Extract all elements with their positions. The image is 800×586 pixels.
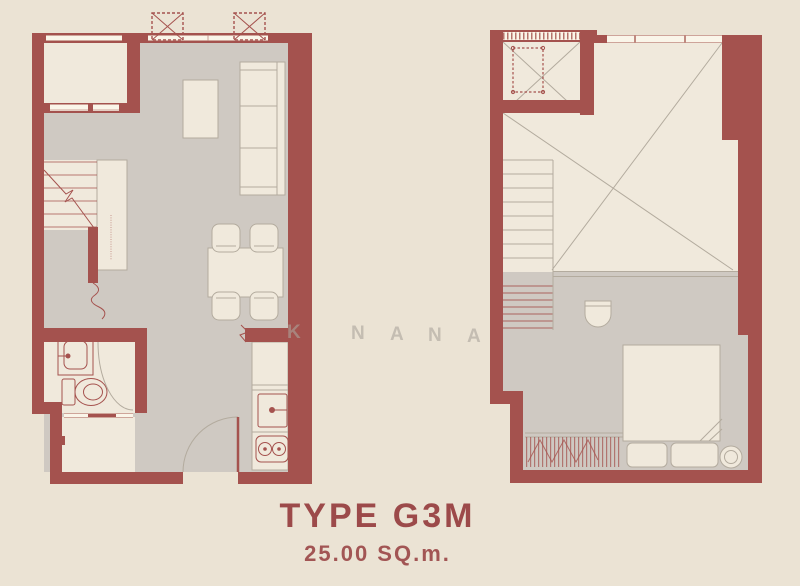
floorplan-canvas: K N A N A TYPE G3M 25.00 SQ.m. <box>0 0 800 586</box>
nightstand <box>720 446 742 468</box>
watermark-letter: N <box>351 323 366 345</box>
balcony-floor <box>44 43 127 103</box>
stair-floor <box>44 160 97 230</box>
stove-icon <box>256 436 288 462</box>
dining-chair <box>250 224 278 252</box>
void-open-to-below <box>503 42 738 272</box>
utility-room-floor <box>62 417 135 472</box>
toilet <box>62 379 107 406</box>
door-handle-mark <box>60 436 65 445</box>
upper-floor-plan <box>480 0 780 500</box>
watermark-letter: N <box>428 325 443 347</box>
title-block: TYPE G3M 25.00 SQ.m. <box>255 497 500 567</box>
kitchen-sink <box>258 394 287 427</box>
pillow <box>671 443 718 467</box>
lower-floor-plan <box>0 0 340 500</box>
dining-chair <box>212 224 240 252</box>
bed <box>623 345 722 467</box>
dining-chair <box>250 292 278 320</box>
plan-title: TYPE G3M <box>255 497 500 536</box>
kitchen-counter <box>252 342 288 470</box>
coffee-table <box>183 80 218 138</box>
dining-chair <box>212 292 240 320</box>
watermark-letter: A <box>390 324 405 346</box>
stair-landing <box>97 160 127 270</box>
stool <box>585 301 611 327</box>
pillow <box>627 443 667 467</box>
plan-area: 25.00 SQ.m. <box>255 541 500 567</box>
watermark-letter: K <box>287 322 302 344</box>
sofa <box>240 62 285 195</box>
dining-table <box>208 248 283 297</box>
watermark-letter: A <box>467 326 482 348</box>
